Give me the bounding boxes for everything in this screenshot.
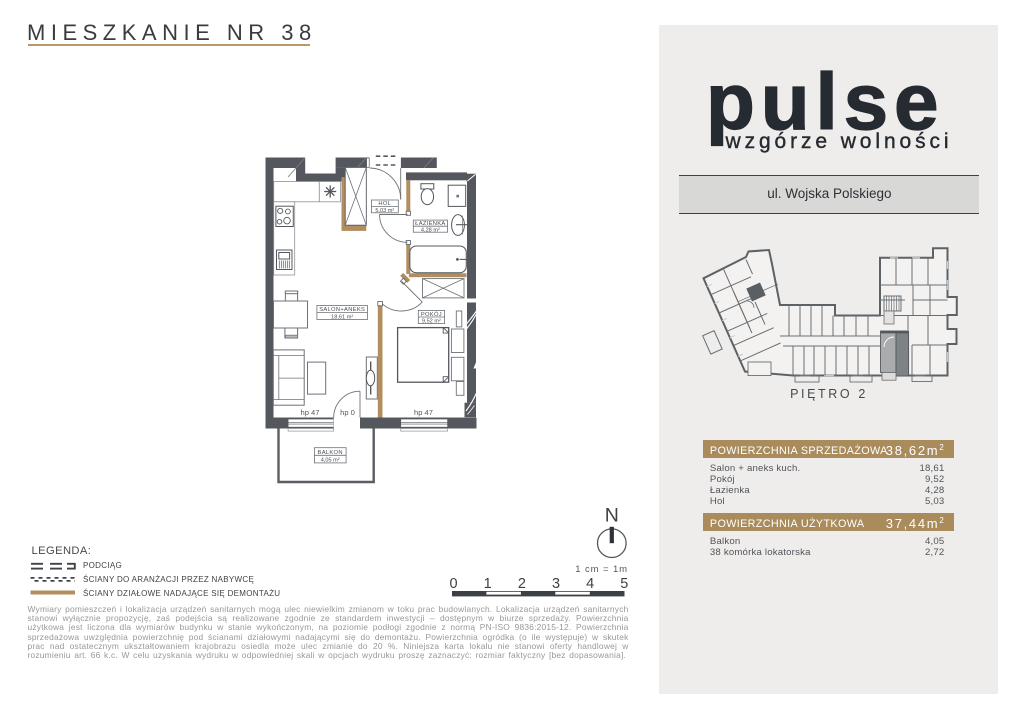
svg-text:hp 47: hp 47 (414, 408, 433, 417)
svg-text:ŁAZIENKA: ŁAZIENKA (415, 221, 445, 227)
svg-text:4,05 m²: 4,05 m² (321, 458, 340, 464)
svg-text:POKÓJ: POKÓJ (421, 311, 442, 318)
svg-text:N: N (605, 505, 619, 527)
svg-text:4,28 m²: 4,28 m² (421, 227, 440, 233)
svg-text:9,52 m²: 9,52 m² (422, 318, 441, 324)
svg-text:18,61 m²: 18,61 m² (331, 314, 353, 320)
svg-text:hp 0: hp 0 (340, 408, 355, 417)
svg-text:5,03 m²: 5,03 m² (375, 208, 394, 214)
svg-text:HOL: HOL (378, 201, 391, 207)
svg-text:BALKON: BALKON (318, 450, 343, 456)
svg-text:hp 47: hp 47 (300, 408, 319, 417)
svg-text:SALON+ANEKS: SALON+ANEKS (319, 307, 365, 313)
